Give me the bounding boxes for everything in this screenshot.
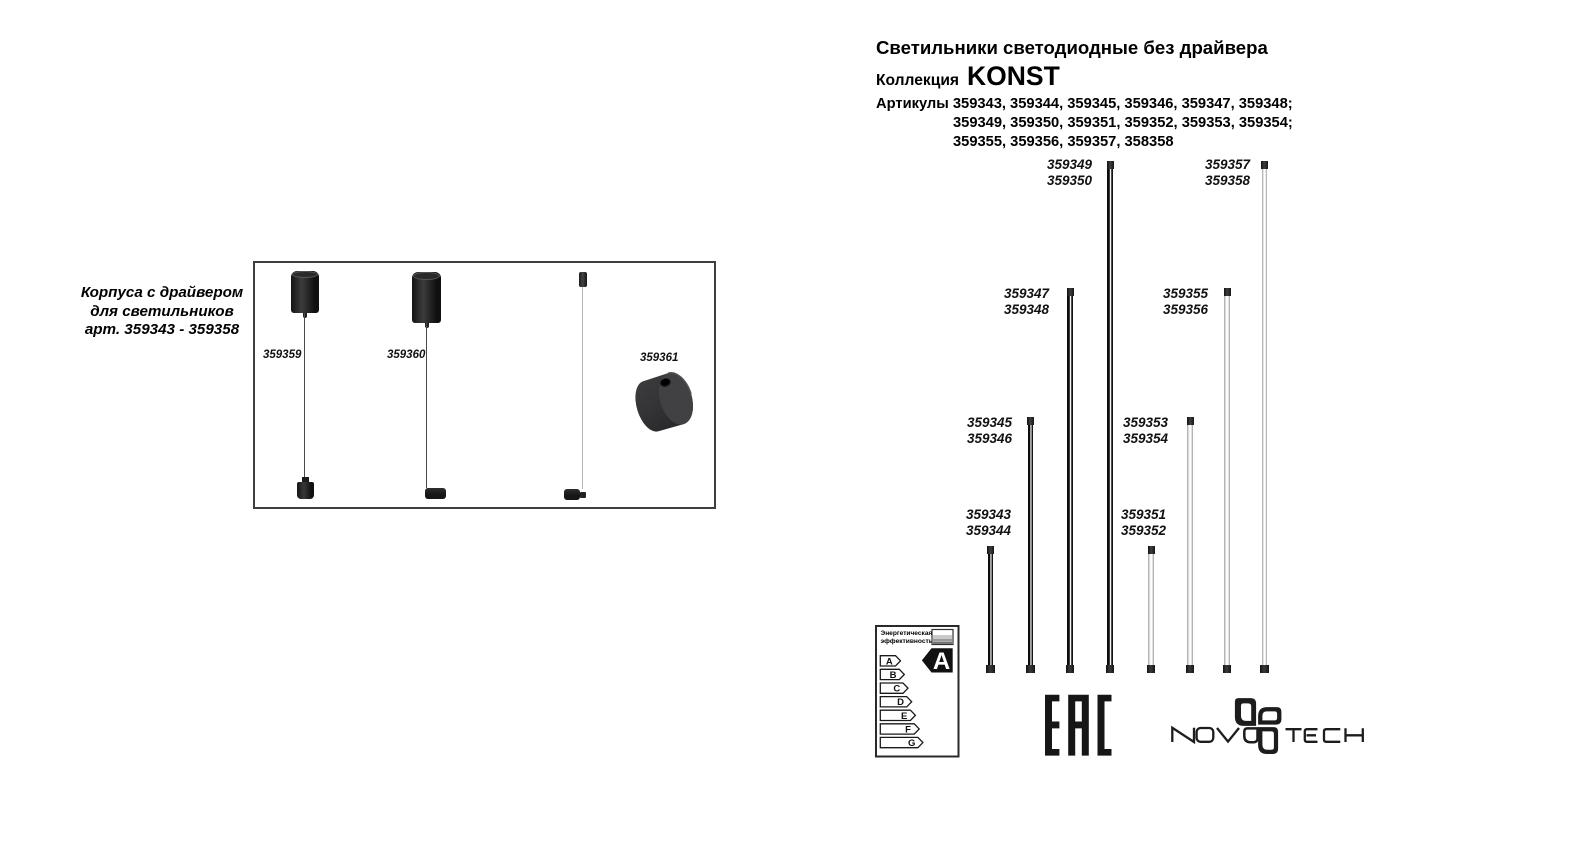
svg-text:D: D (897, 697, 904, 708)
svg-text:эффективность: эффективность (881, 638, 933, 645)
svg-text:Энергетическая: Энергетическая (881, 630, 933, 637)
svg-text:A: A (886, 656, 893, 667)
svg-text:F: F (905, 724, 911, 735)
svg-text:A: A (933, 648, 950, 675)
svg-text:G: G (908, 738, 915, 749)
svg-text:C: C (893, 684, 900, 695)
svg-text:E: E (901, 711, 907, 722)
svg-text:B: B (890, 670, 897, 681)
